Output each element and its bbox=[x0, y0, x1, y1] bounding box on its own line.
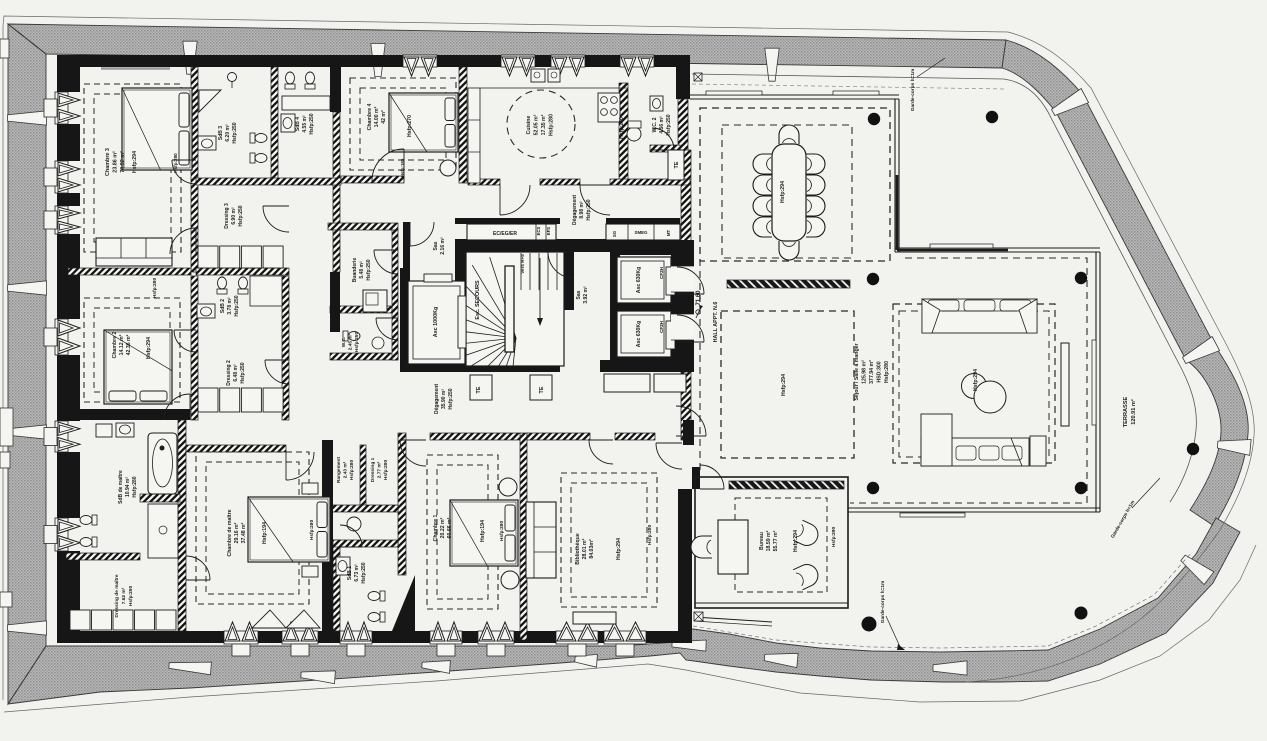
svg-text:55.77 m²: 55.77 m² bbox=[773, 530, 779, 551]
svg-text:W.C. 2: W.C. 2 bbox=[652, 117, 658, 132]
svg-text:Bibliothèque: Bibliothèque bbox=[575, 533, 581, 565]
svg-text:Hsfp:294: Hsfp:294 bbox=[132, 151, 138, 173]
svg-text:3.92 m²: 3.92 m² bbox=[583, 286, 589, 304]
svg-text:Hsfp:250: Hsfp:250 bbox=[354, 332, 360, 353]
svg-text:Hsfp:280: Hsfp:280 bbox=[173, 153, 178, 173]
svg-text:SdB de maître: SdB de maître bbox=[118, 470, 124, 504]
svg-text:35.90 m²: 35.90 m² bbox=[441, 389, 447, 409]
svg-text:Esc. SECOURS: Esc. SECOURS bbox=[475, 280, 481, 320]
svg-text:125.98 m²: 125.98 m² bbox=[862, 360, 868, 384]
svg-text:70.92 m²: 70.92 m² bbox=[120, 151, 126, 173]
svg-text:Hsfp:250: Hsfp:250 bbox=[361, 562, 367, 583]
svg-text:Cuisine: Cuisine bbox=[526, 116, 532, 135]
svg-text:4.55 m²: 4.55 m² bbox=[302, 115, 308, 133]
svg-text:Chambre de maître: Chambre de maître bbox=[227, 509, 233, 556]
svg-text:Asc 1000Kg: Asc 1000Kg bbox=[433, 307, 439, 338]
svg-text:Asc 630Kg: Asc 630Kg bbox=[636, 321, 642, 348]
svg-text:Hsfp:294: Hsfp:294 bbox=[146, 337, 152, 359]
svg-text:Rangement: Rangement bbox=[336, 457, 342, 484]
svg-text:Hsfp:294: Hsfp:294 bbox=[793, 530, 799, 552]
svg-text:Hsfp:250: Hsfp:250 bbox=[586, 199, 592, 220]
svg-text:7.62 m²: 7.62 m² bbox=[121, 587, 127, 604]
svg-text:2.45 m²: 2.45 m² bbox=[348, 333, 354, 350]
svg-text:6.90 m²: 6.90 m² bbox=[231, 207, 237, 225]
svg-text:Hsfp:294: Hsfp:294 bbox=[616, 538, 622, 560]
svg-text:Hsfp:294: Hsfp:294 bbox=[973, 369, 979, 391]
svg-text:8.98 m²: 8.98 m² bbox=[579, 201, 585, 219]
svg-text:Hsfp:280: Hsfp:280 bbox=[383, 460, 389, 481]
svg-text:Hsfp:280: Hsfp:280 bbox=[549, 114, 555, 136]
svg-text:Chambre 2: Chambre 2 bbox=[112, 331, 118, 358]
svg-text:377.94 m²: 377.94 m² bbox=[869, 360, 875, 384]
svg-text:29.16 m²: 29.16 m² bbox=[234, 522, 240, 543]
svg-text:84.03m²: 84.03m² bbox=[589, 539, 595, 559]
svg-text:SdB 1: SdB 1 bbox=[347, 566, 353, 580]
svg-text:Hsfp:250: Hsfp:250 bbox=[309, 113, 315, 134]
svg-text:4.56 m²: 4.56 m² bbox=[659, 116, 665, 134]
svg-text:ECS: ECS bbox=[536, 226, 541, 235]
svg-text:6.20 m²: 6.20 m² bbox=[225, 124, 231, 142]
svg-text:Hsfp:280: Hsfp:280 bbox=[349, 460, 355, 481]
svg-text:120.91 m²: 120.91 m² bbox=[1130, 399, 1137, 425]
svg-text:Hsfp:280: Hsfp:280 bbox=[152, 278, 158, 299]
svg-text:Sas: Sas bbox=[576, 290, 582, 299]
svg-text:52.05 m²: 52.05 m² bbox=[534, 114, 540, 135]
svg-text:2.77 m²: 2.77 m² bbox=[377, 461, 383, 478]
svg-text:MT: MT bbox=[666, 230, 671, 237]
svg-text:Hsfp:185: Hsfp:185 bbox=[400, 158, 405, 177]
svg-text:60.66 m²: 60.66 m² bbox=[447, 517, 453, 538]
svg-text:Dressing 2: Dressing 2 bbox=[226, 360, 232, 386]
svg-text:3.78 m²: 3.78 m² bbox=[227, 297, 233, 315]
svg-text:Dégagement: Dégagement bbox=[572, 195, 578, 225]
svg-text:Chambre 4: Chambre 4 bbox=[367, 103, 373, 130]
svg-text:28.01 m²: 28.01 m² bbox=[582, 538, 588, 559]
svg-text:Hsfp:270: Hsfp:270 bbox=[407, 115, 413, 137]
svg-text:23.86 m²: 23.86 m² bbox=[113, 151, 119, 173]
svg-text:Asc 630Kg: Asc 630Kg bbox=[636, 267, 642, 294]
svg-text:Vers R+8: Vers R+8 bbox=[520, 254, 525, 274]
svg-text:17.35 m²: 17.35 m² bbox=[541, 114, 547, 135]
svg-text:Hsfp:294: Hsfp:294 bbox=[780, 181, 786, 203]
svg-text:HALL APPT. N.6: HALL APPT. N.6 bbox=[713, 302, 719, 343]
svg-text:6.73 m²: 6.73 m² bbox=[354, 564, 360, 582]
svg-text:Hsfp:250: Hsfp:250 bbox=[232, 122, 238, 143]
svg-text:Hsfp:250: Hsfp:250 bbox=[666, 114, 672, 135]
svg-text:Hsfp:290: Hsfp:290 bbox=[831, 527, 837, 548]
svg-text:Garde-corps h=1m: Garde-corps h=1m bbox=[910, 69, 916, 112]
svg-text:SMEG: SMEG bbox=[635, 230, 649, 235]
svg-text:Chambre 3: Chambre 3 bbox=[105, 148, 111, 176]
svg-text:5.48 m²: 5.48 m² bbox=[359, 261, 365, 279]
svg-text:Séjour / Salle à manger: Séjour / Salle à manger bbox=[854, 343, 860, 400]
svg-text:SG: SG bbox=[612, 230, 617, 237]
svg-text:HSD:300: HSD:300 bbox=[877, 361, 883, 382]
svg-text:Hsfp:250: Hsfp:250 bbox=[619, 117, 625, 139]
svg-text:14.12 m²: 14.12 m² bbox=[119, 334, 125, 355]
svg-text:6.48 m²: 6.48 m² bbox=[233, 364, 239, 382]
svg-text:W.C.: W.C. bbox=[341, 337, 347, 347]
svg-text:Hsfp:250: Hsfp:250 bbox=[234, 295, 240, 316]
svg-text:2.16 m²: 2.16 m² bbox=[440, 237, 446, 255]
svg-text:Dégagement: Dégagement bbox=[434, 384, 440, 414]
svg-text:SdB 4: SdB 4 bbox=[295, 117, 301, 131]
svg-text:Chambre 1: Chambre 1 bbox=[433, 514, 439, 541]
svg-text:TE: TE bbox=[539, 386, 545, 393]
svg-text:42 m²: 42 m² bbox=[381, 110, 387, 124]
svg-text:Hsfp:280: Hsfp:280 bbox=[647, 525, 653, 546]
svg-text:20.22 m²: 20.22 m² bbox=[440, 517, 446, 538]
svg-text:Sas: Sas bbox=[433, 241, 439, 250]
svg-text:Bureau: Bureau bbox=[759, 532, 765, 550]
svg-text:2.43 m²: 2.43 m² bbox=[343, 461, 349, 478]
svg-text:Garde-corps h=1m: Garde-corps h=1m bbox=[880, 581, 886, 624]
svg-text:SdB 3: SdB 3 bbox=[218, 126, 224, 140]
svg-text:Hsfp:280: Hsfp:280 bbox=[309, 520, 315, 541]
svg-text:SdB 2: SdB 2 bbox=[220, 299, 226, 313]
svg-text:Dressing de maître: Dressing de maître bbox=[114, 574, 120, 618]
svg-text:10.94 m²: 10.94 m² bbox=[125, 477, 131, 497]
svg-text:71,60: 71,60 bbox=[696, 290, 702, 306]
svg-text:TE: TE bbox=[674, 161, 680, 168]
svg-text:Hsfp:194: Hsfp:194 bbox=[480, 520, 486, 542]
svg-text:CF2H: CF2H bbox=[659, 266, 664, 279]
svg-text:Hsfp:280: Hsfp:280 bbox=[499, 521, 505, 542]
svg-text:Hsfp:250: Hsfp:250 bbox=[240, 362, 246, 383]
svg-text:EFS: EFS bbox=[546, 227, 551, 235]
svg-text:Hsfp:294: Hsfp:294 bbox=[781, 374, 787, 396]
svg-text:Hsfp:250: Hsfp:250 bbox=[448, 388, 454, 409]
svg-text:14.00 m²: 14.00 m² bbox=[374, 106, 380, 127]
svg-text:Buanderie: Buanderie bbox=[352, 258, 358, 283]
svg-text:TE: TE bbox=[476, 386, 482, 393]
svg-text:CF2H: CF2H bbox=[659, 320, 664, 333]
svg-text:37.48 m²: 37.48 m² bbox=[241, 522, 247, 543]
svg-text:Hsfp:250: Hsfp:250 bbox=[128, 586, 134, 607]
svg-text:Dressing 3: Dressing 3 bbox=[224, 203, 230, 229]
svg-text:Hsfp:250: Hsfp:250 bbox=[238, 205, 244, 226]
svg-text:Dressing 1: Dressing 1 bbox=[370, 457, 376, 482]
svg-text:Hsfp:194: Hsfp:194 bbox=[262, 522, 268, 544]
svg-text:Hsfp:280: Hsfp:280 bbox=[132, 476, 138, 497]
svg-text:TERRASSE: TERRASSE bbox=[1123, 397, 1129, 428]
svg-text:EC/EG/ER: EC/EG/ER bbox=[493, 231, 517, 237]
svg-text:42.36 m²: 42.36 m² bbox=[126, 334, 132, 355]
svg-text:18.59 m²: 18.59 m² bbox=[766, 530, 772, 551]
svg-text:Hsfp:280: Hsfp:280 bbox=[884, 361, 890, 383]
svg-text:Hsfp:250: Hsfp:250 bbox=[366, 259, 372, 280]
